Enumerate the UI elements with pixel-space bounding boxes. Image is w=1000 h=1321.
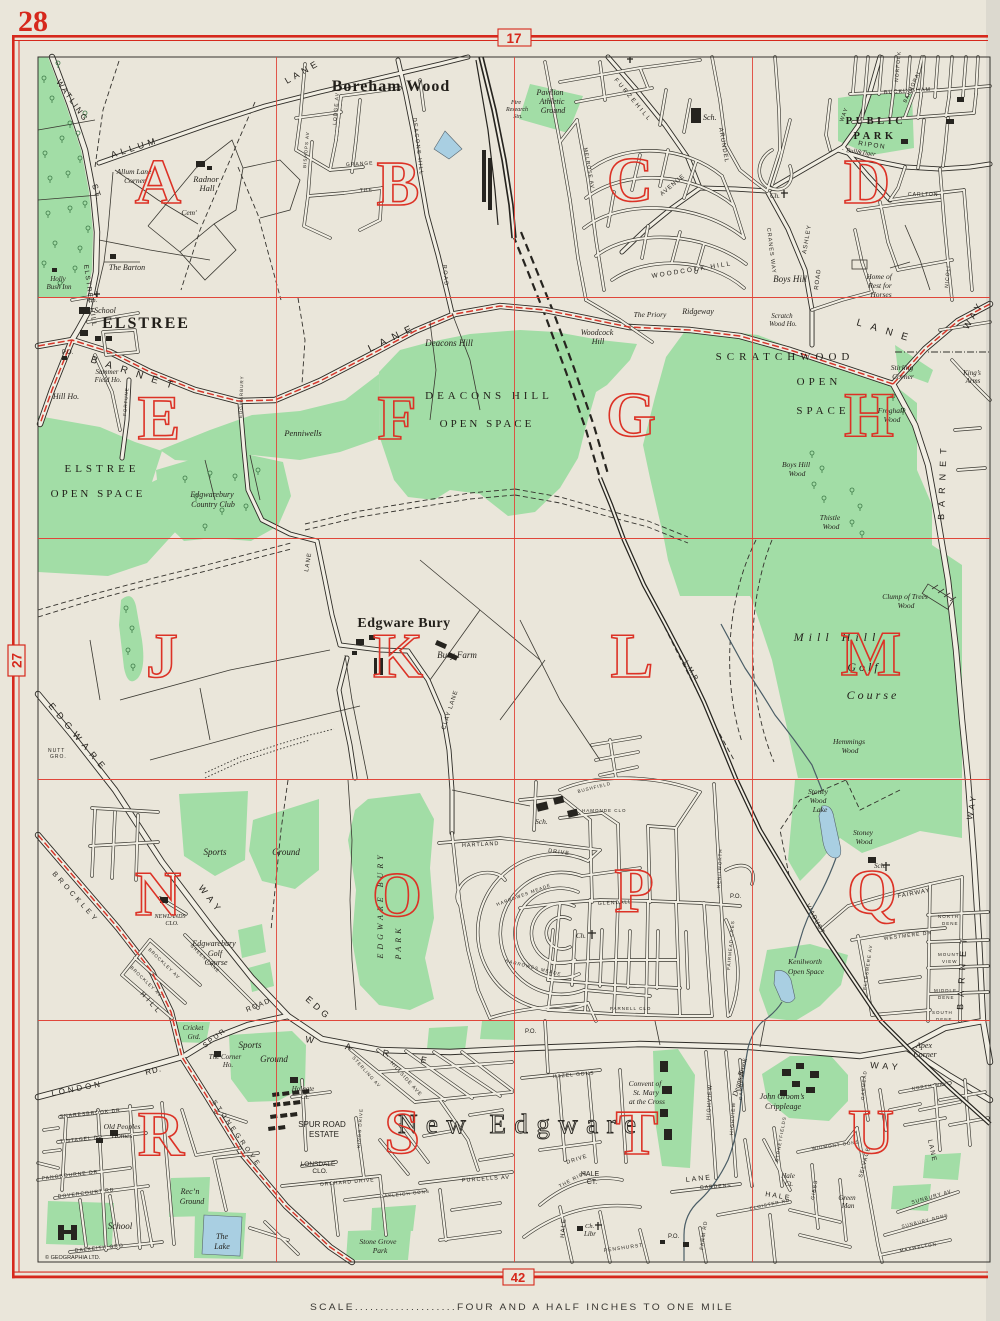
svg-text:School: School — [94, 306, 117, 315]
svg-text:Ridgeway: Ridgeway — [681, 307, 714, 316]
svg-text:Green: Green — [838, 1194, 856, 1202]
svg-text:Bury Farm: Bury Farm — [437, 650, 477, 660]
svg-text:Wood: Wood — [898, 601, 915, 610]
svg-text:Boys Hill: Boys Hill — [773, 274, 807, 284]
svg-text:Research: Research — [505, 107, 528, 113]
svg-text:Grd.: Grd. — [188, 1033, 201, 1041]
svg-text:Park: Park — [372, 1246, 388, 1255]
svg-text:SCALE....................FOUR: SCALE....................FOUR AND A HALF… — [310, 1302, 734, 1312]
svg-text:Convent of: Convent of — [629, 1079, 663, 1088]
svg-text:Fire: Fire — [510, 100, 521, 106]
svg-text:Stirling: Stirling — [891, 363, 914, 372]
svg-text:Open Space: Open Space — [788, 967, 825, 976]
svg-text:Wood: Wood — [810, 796, 827, 805]
svg-text:P.O.: P.O. — [668, 1234, 680, 1240]
svg-text:Apex: Apex — [915, 1041, 932, 1050]
svg-text:Hall: Hall — [198, 183, 215, 193]
svg-text:Rest for: Rest for — [867, 281, 892, 290]
svg-text:P.O.: P.O. — [525, 1029, 537, 1035]
svg-text:Holly: Holly — [49, 275, 66, 283]
svg-text:HAMONDE CLO: HAMONDE CLO — [582, 808, 627, 813]
svg-text:The Priory: The Priory — [634, 310, 667, 319]
svg-text:O: O — [372, 859, 422, 930]
svg-text:John Groom’s: John Groom’s — [760, 1092, 805, 1101]
svg-text:CLO.: CLO. — [312, 1168, 327, 1175]
svg-text:Athletic: Athletic — [539, 97, 565, 106]
svg-text:Ground: Ground — [260, 1054, 288, 1064]
svg-text:Crippleage: Crippleage — [765, 1102, 801, 1111]
svg-text:Ct.: Ct. — [301, 1093, 310, 1101]
svg-text:LONSDALE: LONSDALE — [301, 1161, 336, 1168]
svg-text:Libr: Libr — [583, 1230, 596, 1238]
svg-text:Ground: Ground — [180, 1197, 206, 1206]
svg-text:Sports: Sports — [238, 1040, 262, 1050]
svg-text:Woodcock: Woodcock — [581, 328, 614, 337]
svg-text:28: 28 — [18, 5, 48, 38]
svg-text:Country Club: Country Club — [191, 500, 235, 509]
svg-text:The Corner: The Corner — [209, 1053, 242, 1061]
svg-text:Ho.: Ho. — [222, 1061, 234, 1069]
svg-text:Home of: Home of — [865, 272, 893, 281]
svg-text:Stone Grove: Stone Grove — [359, 1237, 397, 1246]
svg-text:Boreham Wood: Boreham Wood — [332, 78, 451, 95]
svg-text:MOUNT: MOUNT — [938, 952, 960, 957]
svg-text:Deacons Hill: Deacons Hill — [424, 338, 473, 348]
svg-text:Boys Hill: Boys Hill — [782, 460, 810, 469]
svg-text:CT.: CT. — [587, 1179, 598, 1186]
svg-text:Arms: Arms — [965, 377, 981, 385]
svg-text:A: A — [135, 146, 181, 217]
svg-text:H: H — [844, 379, 894, 450]
svg-text:M: M — [841, 618, 901, 689]
svg-text:Ch.: Ch. — [576, 932, 586, 940]
svg-text:K: K — [373, 620, 423, 691]
svg-text:Ch.: Ch. — [770, 192, 780, 200]
svg-text:Wood: Wood — [842, 746, 859, 755]
svg-text:OPEN SPACE: OPEN SPACE — [51, 488, 146, 500]
svg-text:Kenilworth: Kenilworth — [787, 957, 822, 966]
svg-text:Hill Ho.: Hill Ho. — [52, 392, 79, 401]
svg-text:DEACONS HILL: DEACONS HILL — [425, 390, 553, 402]
svg-text:GRO.: GRO. — [50, 754, 67, 760]
svg-text:Clump of Trees: Clump of Trees — [882, 592, 928, 601]
svg-text:Lake: Lake — [812, 805, 828, 814]
svg-text:Course: Course — [847, 688, 900, 702]
svg-text:Wood Ho.: Wood Ho. — [769, 320, 797, 328]
svg-text:F: F — [377, 382, 416, 453]
svg-text:P.O.: P.O. — [62, 350, 74, 356]
svg-text:Bush Inn: Bush Inn — [46, 283, 72, 291]
svg-text:Pavilion: Pavilion — [535, 88, 563, 97]
svg-text:E: E — [138, 382, 181, 453]
svg-text:S: S — [384, 1096, 420, 1167]
svg-text:PUBLIC: PUBLIC — [846, 116, 907, 127]
svg-text:Wood: Wood — [823, 522, 840, 531]
svg-text:DENE: DENE — [942, 921, 959, 926]
svg-text:NORTH: NORTH — [938, 914, 959, 919]
svg-text:Scratch: Scratch — [771, 312, 793, 320]
svg-text:Thistle: Thistle — [820, 513, 841, 522]
svg-text:Cricket: Cricket — [183, 1024, 205, 1032]
svg-text:L: L — [611, 620, 654, 691]
svg-text:The Barton: The Barton — [109, 263, 145, 272]
svg-text:THE: THE — [360, 187, 373, 194]
svg-text:Stoney: Stoney — [808, 787, 829, 796]
svg-text:J: J — [146, 620, 178, 691]
svg-text:MIDDLE: MIDDLE — [934, 988, 957, 993]
svg-text:Penniwells: Penniwells — [283, 428, 322, 438]
svg-text:T: T — [616, 1097, 659, 1168]
svg-text:P.O.: P.O. — [730, 894, 742, 900]
svg-text:Sch.: Sch. — [703, 113, 717, 122]
svg-text:King’s: King’s — [962, 369, 981, 377]
svg-text:N: N — [135, 858, 181, 929]
svg-text:SPUR ROAD: SPUR ROAD — [298, 1120, 346, 1129]
svg-text:Field Ho.: Field Ho. — [94, 376, 122, 384]
svg-text:The: The — [216, 1232, 228, 1241]
svg-text:SCRATCHWOOD: SCRATCHWOOD — [716, 351, 855, 363]
svg-text:Stoney: Stoney — [853, 828, 874, 837]
svg-text:Wood: Wood — [856, 837, 873, 846]
svg-text:ELSTREE: ELSTREE — [102, 315, 190, 332]
svg-text:U: U — [848, 1096, 894, 1167]
svg-text:D: D — [844, 146, 890, 217]
svg-text:Edgwarebury: Edgwarebury — [191, 939, 236, 948]
svg-text:Holgate: Holgate — [291, 1085, 315, 1093]
svg-text:School: School — [108, 1221, 133, 1231]
svg-text:B: B — [377, 148, 420, 219]
svg-text:© GEOGRAPHIA LTD.: © GEOGRAPHIA LTD. — [45, 1254, 101, 1261]
svg-text:Sch.: Sch. — [535, 817, 548, 826]
svg-text:OPEN: OPEN — [797, 376, 842, 388]
svg-text:C: C — [607, 144, 653, 215]
svg-text:Man: Man — [841, 1202, 855, 1210]
svg-text:17: 17 — [506, 31, 521, 46]
svg-text:Wood: Wood — [789, 469, 806, 478]
svg-text:P: P — [614, 855, 653, 926]
svg-text:Hale: Hale — [780, 1172, 795, 1180]
svg-text:Ct.: Ct. — [785, 1180, 794, 1188]
svg-text:ESTATE: ESTATE — [309, 1130, 339, 1139]
svg-text:Ch.: Ch. — [88, 297, 98, 304]
svg-text:Lake: Lake — [213, 1242, 230, 1251]
svg-text:42: 42 — [511, 1270, 525, 1285]
svg-text:DENE: DENE — [938, 995, 955, 1000]
svg-text:Rec’n: Rec’n — [180, 1187, 200, 1196]
svg-text:R: R — [138, 1098, 185, 1169]
svg-text:Hemmings: Hemmings — [832, 737, 865, 746]
svg-text:Homes: Homes — [111, 1131, 133, 1140]
svg-text:ELSTREE: ELSTREE — [64, 463, 139, 475]
svg-text:FARNELL CLO: FARNELL CLO — [610, 1006, 651, 1011]
svg-text:OPEN SPACE: OPEN SPACE — [440, 418, 535, 430]
svg-text:Ch.: Ch. — [585, 1223, 595, 1230]
svg-text:CARLTON: CARLTON — [908, 192, 938, 198]
svg-text:VIEW: VIEW — [942, 959, 958, 964]
svg-text:Cemʹ: Cemʹ — [181, 208, 197, 217]
svg-text:Golf: Golf — [208, 949, 224, 958]
svg-text:Hill: Hill — [591, 337, 605, 346]
svg-text:Old Peoples: Old Peoples — [104, 1122, 141, 1131]
svg-text:Sports: Sports — [203, 847, 227, 857]
svg-text:DENE: DENE — [936, 1017, 953, 1022]
svg-text:Corner: Corner — [913, 1050, 937, 1059]
svg-text:Corner: Corner — [892, 372, 914, 381]
svg-text:Q: Q — [847, 856, 897, 927]
svg-text:SPACE: SPACE — [796, 405, 849, 417]
svg-text:27: 27 — [10, 653, 25, 668]
svg-text:G: G — [606, 379, 656, 450]
svg-text:St. Mary: St. Mary — [633, 1088, 660, 1097]
svg-text:SOUTH: SOUTH — [932, 1010, 953, 1015]
svg-text:Edgwarebury: Edgwarebury — [189, 490, 234, 499]
svg-text:Ground: Ground — [541, 106, 567, 115]
